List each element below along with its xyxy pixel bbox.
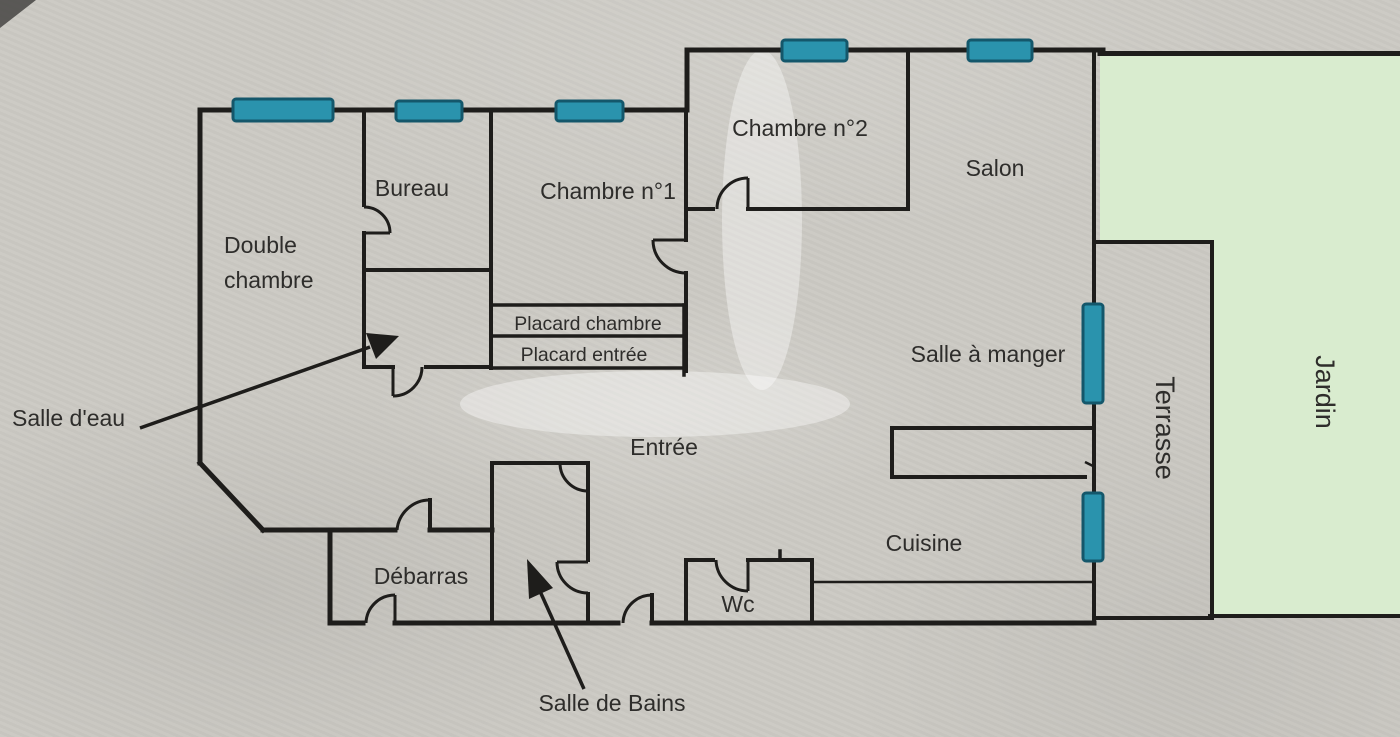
french-door-salle-a-manger	[1083, 304, 1103, 403]
room-label-chambre1: Chambre n°1	[540, 178, 676, 204]
door-arc-debarras-bottom	[366, 595, 395, 623]
door-arc-salledeau	[393, 367, 422, 396]
room-label-jardin: Jardin	[1310, 355, 1340, 429]
salledeau-arrow-line	[140, 347, 370, 428]
door-arc-sdb-top	[560, 463, 588, 491]
floorplan-svg: Double chambre Bureau Chambre n°1 Chambr…	[0, 0, 1400, 737]
garden-area	[1100, 54, 1400, 617]
sdb-arrow-line	[539, 589, 584, 689]
scan-fade-streak	[722, 50, 802, 390]
garden-shape	[1100, 56, 1400, 614]
room-label-debarras: Débarras	[374, 563, 469, 589]
paper-corner-mark	[0, 0, 36, 28]
door-arc-wc	[716, 560, 748, 591]
door-arc-debarras-top	[397, 500, 430, 530]
door-arc-sdb-bottom	[557, 562, 588, 593]
french-door-cuisine	[1083, 493, 1103, 561]
window-bureau	[396, 101, 462, 121]
door-arc-bureau	[364, 207, 390, 233]
room-label-double-chambre-line2: chambre	[224, 267, 313, 293]
window-salon	[968, 40, 1032, 61]
door-arc-chambre1	[653, 240, 686, 273]
scan-fade-patch	[460, 371, 850, 437]
sdb-arrowhead	[527, 559, 553, 599]
window-chambre2	[782, 40, 847, 61]
window-double-chambre	[233, 99, 333, 121]
salledeau-arrowhead	[366, 333, 399, 359]
room-label-chambre2: Chambre n°2	[732, 115, 868, 141]
wall-left-diagonal	[200, 463, 263, 530]
dining-table-tick	[1085, 462, 1093, 466]
room-label-double-chambre-line1: Double	[224, 232, 297, 258]
room-label-salle-a-manger: Salle à manger	[911, 341, 1066, 367]
room-label-salle-deau: Salle d'eau	[12, 405, 125, 431]
window-chambre1	[556, 101, 623, 121]
room-label-placard-chambre: Placard chambre	[514, 313, 661, 335]
room-label-cuisine: Cuisine	[886, 530, 963, 556]
room-label-terrasse: Terrasse	[1150, 376, 1180, 480]
room-label-salle-de-bains: Salle de Bains	[538, 690, 685, 716]
door-arc-entrance	[623, 595, 652, 623]
room-label-placard-entree: Placard entrée	[521, 344, 648, 366]
room-label-bureau: Bureau	[375, 175, 449, 201]
room-label-salon: Salon	[966, 155, 1025, 181]
room-label-wc: Wc	[721, 591, 754, 617]
room-label-entree: Entrée	[630, 434, 698, 460]
